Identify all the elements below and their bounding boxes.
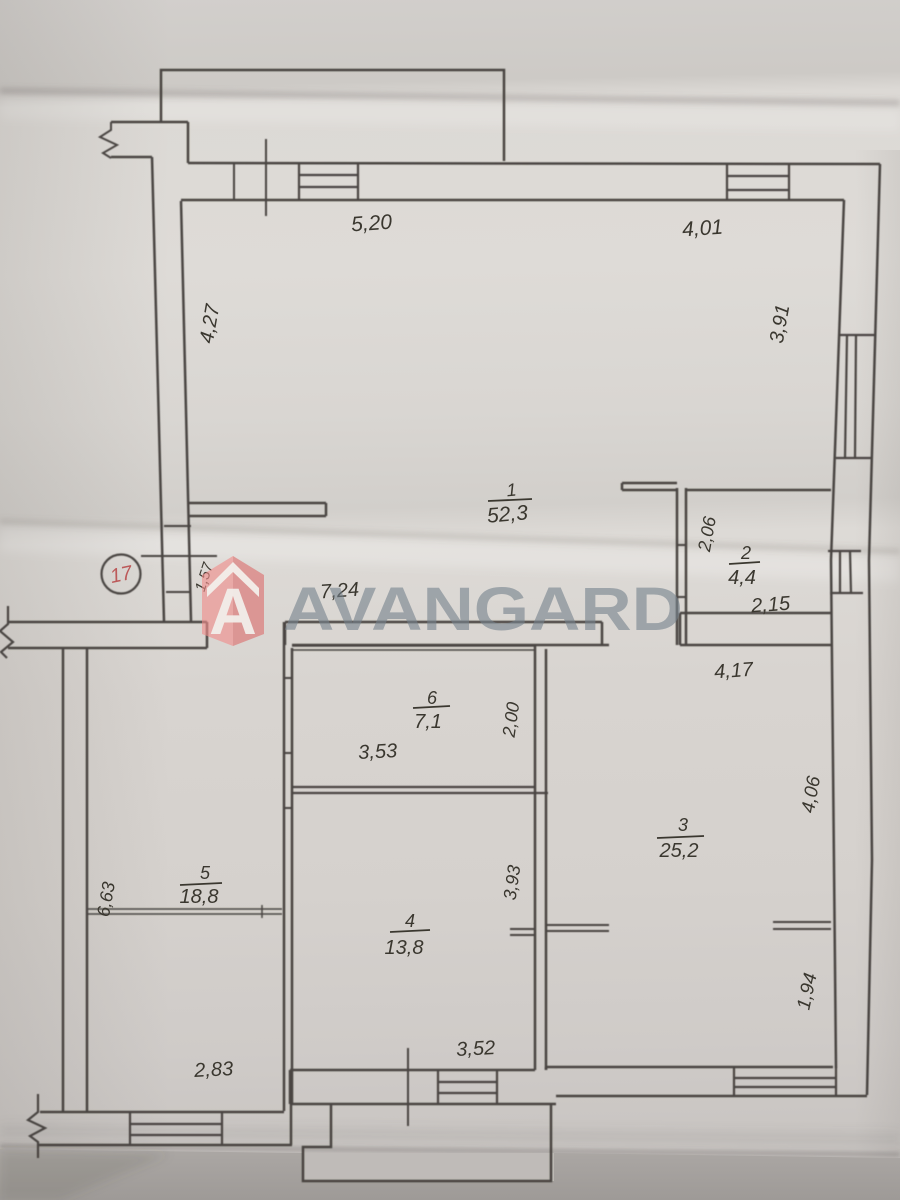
svg-text:2,15: 2,15 bbox=[749, 593, 791, 618]
svg-text:2,83: 2,83 bbox=[193, 1058, 234, 1082]
svg-text:13,8: 13,8 bbox=[385, 937, 424, 959]
svg-text:5: 5 bbox=[200, 863, 211, 883]
svg-text:3,52: 3,52 bbox=[456, 1037, 496, 1061]
svg-text:3,53: 3,53 bbox=[358, 740, 398, 764]
svg-text:1: 1 bbox=[506, 480, 518, 501]
svg-text:4,01: 4,01 bbox=[681, 216, 723, 242]
svg-text:18,8: 18,8 bbox=[180, 886, 219, 908]
svg-text:AVANGARD: AVANGARD bbox=[283, 575, 683, 643]
svg-text:4,17: 4,17 bbox=[713, 659, 754, 684]
svg-text:25,2: 25,2 bbox=[659, 840, 699, 862]
svg-text:52,3: 52,3 bbox=[486, 501, 529, 528]
svg-text:3: 3 bbox=[678, 815, 688, 835]
svg-text:A: A bbox=[209, 574, 257, 648]
svg-text:2: 2 bbox=[740, 543, 751, 563]
svg-text:7,1: 7,1 bbox=[414, 711, 442, 733]
svg-text:4,4: 4,4 bbox=[728, 567, 756, 589]
svg-text:5,20: 5,20 bbox=[350, 211, 393, 237]
svg-text:4: 4 bbox=[405, 911, 415, 931]
svg-text:6: 6 bbox=[427, 688, 438, 708]
